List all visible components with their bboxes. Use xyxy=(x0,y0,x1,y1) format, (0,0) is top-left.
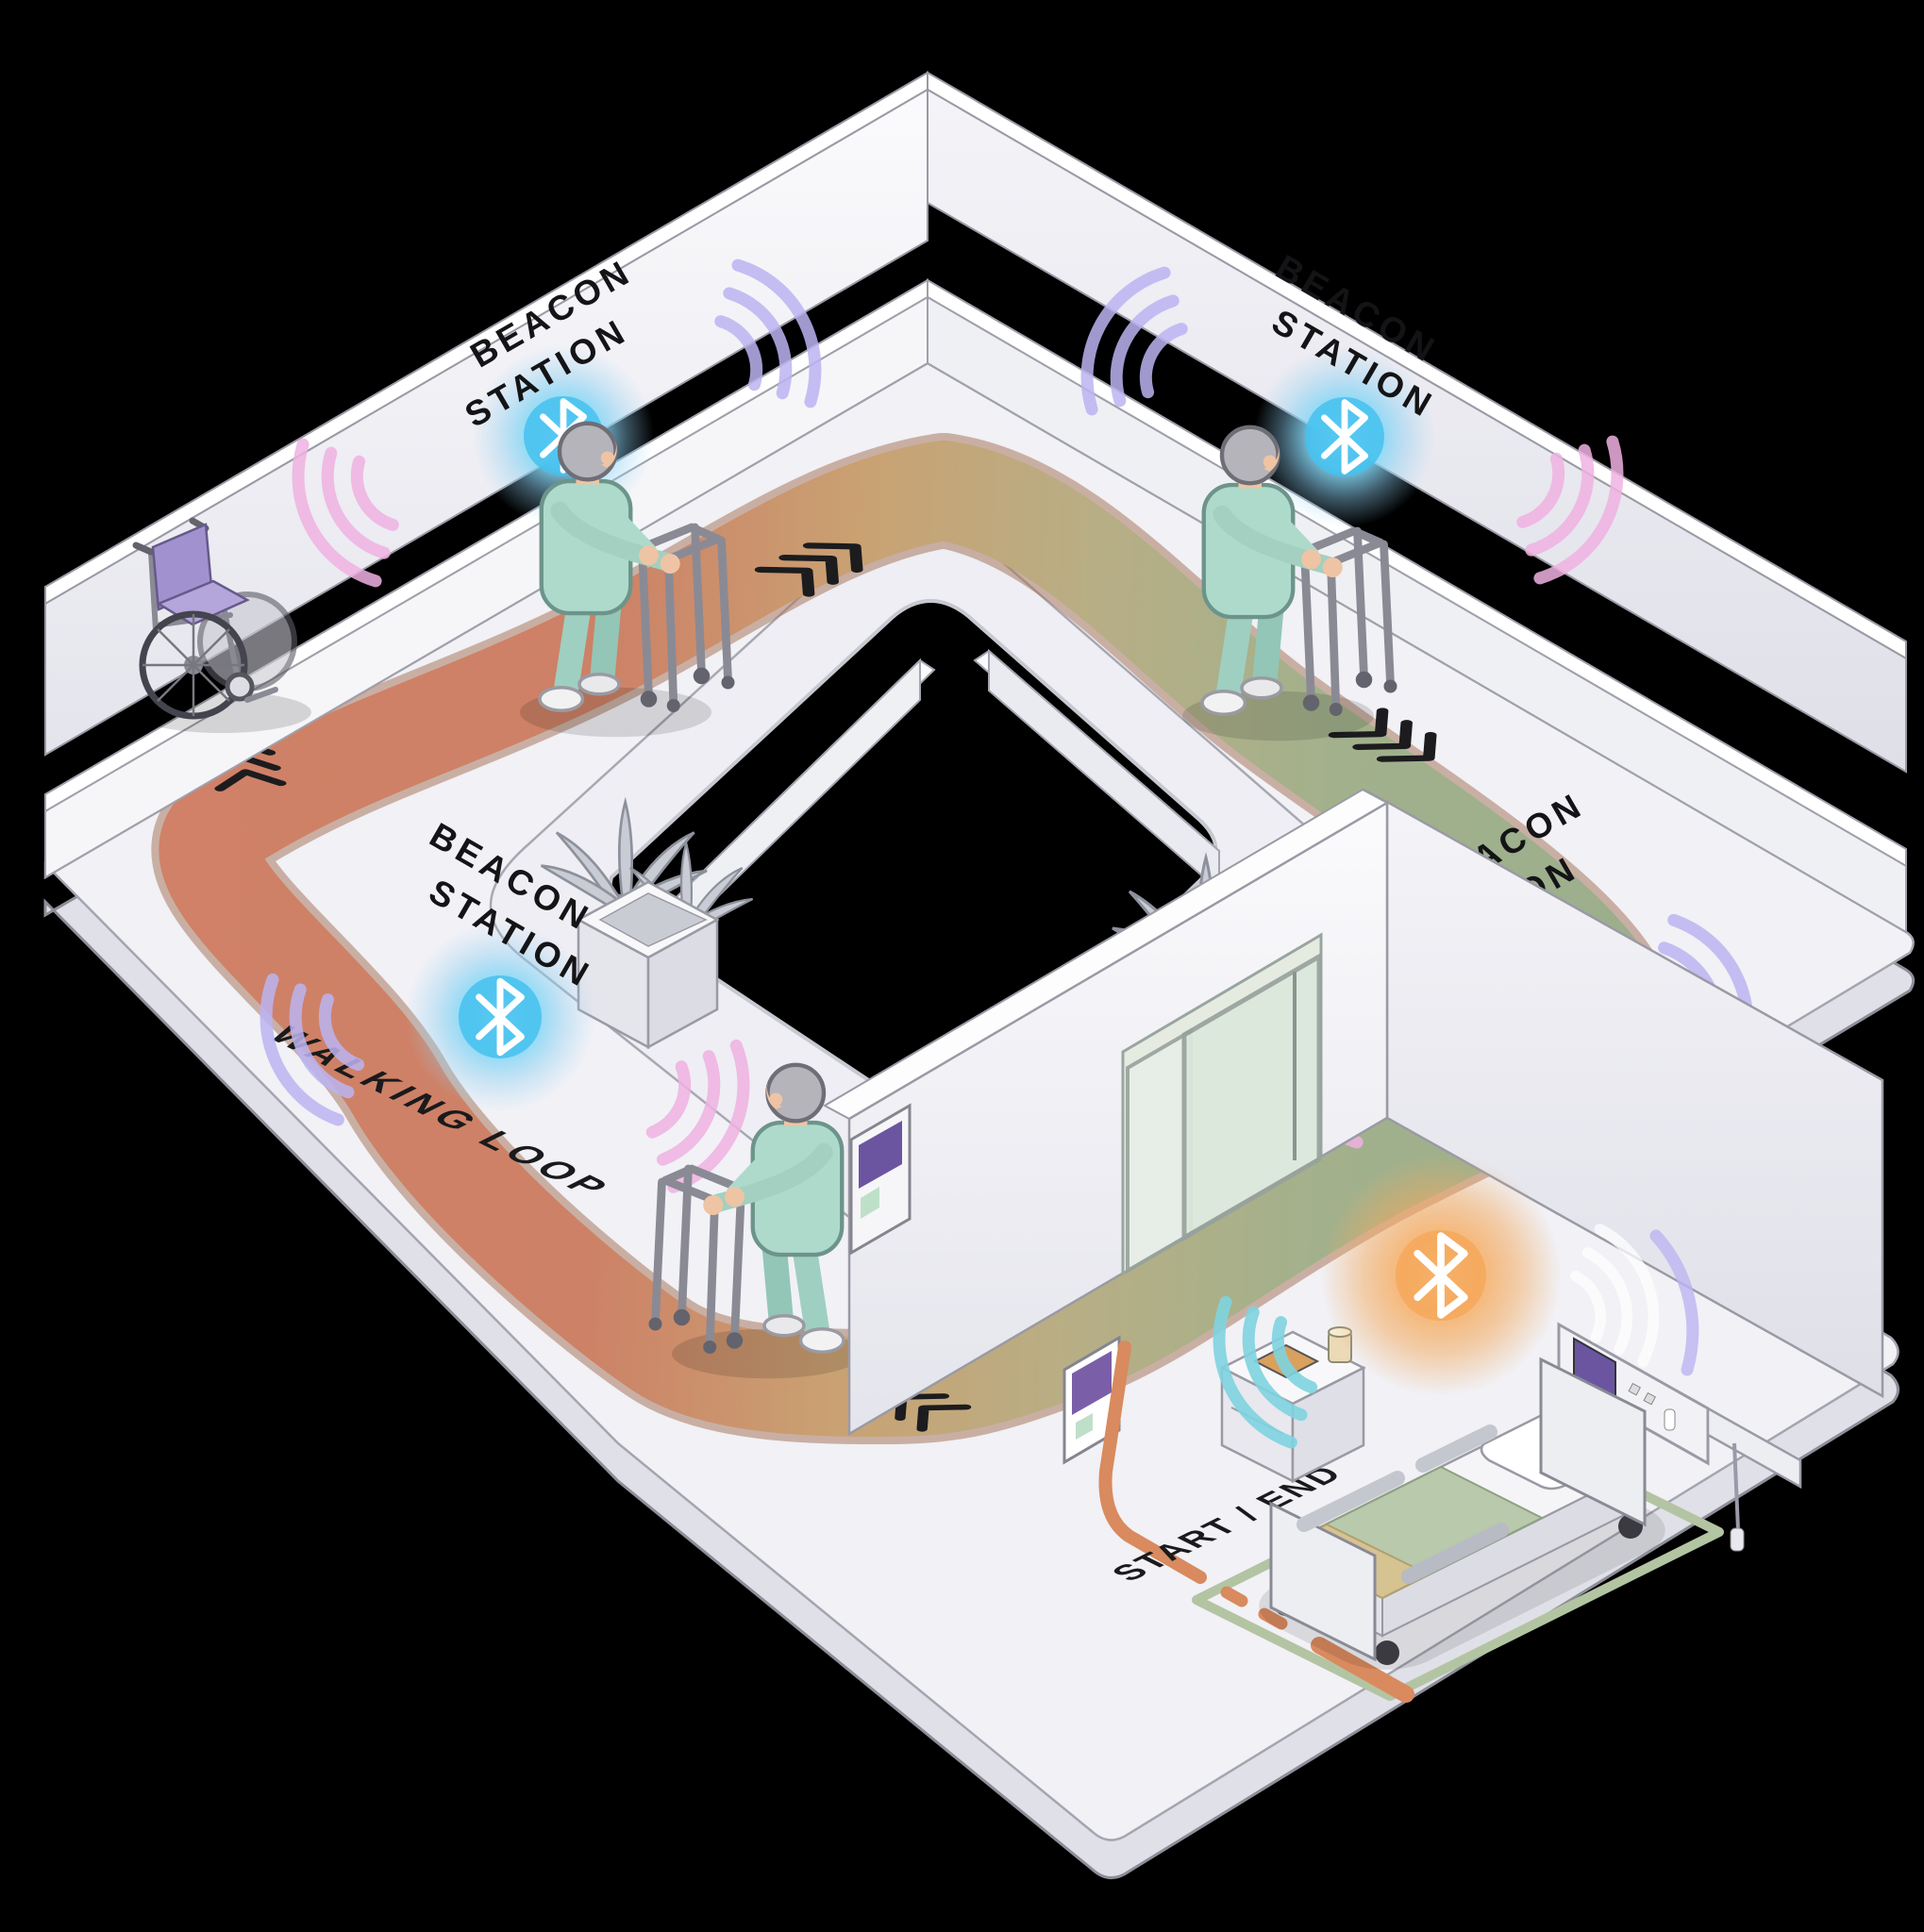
call-button[interactable] xyxy=(1731,1528,1744,1551)
light-switch[interactable] xyxy=(1665,1409,1675,1430)
sliding-door-left-panel[interactable] xyxy=(1128,1031,1191,1271)
bed-wheel xyxy=(1375,1641,1399,1665)
isometric-hospital-walking-loop-illustration: WALKING LOOP BEACON STATION BEA xyxy=(0,0,1924,1932)
